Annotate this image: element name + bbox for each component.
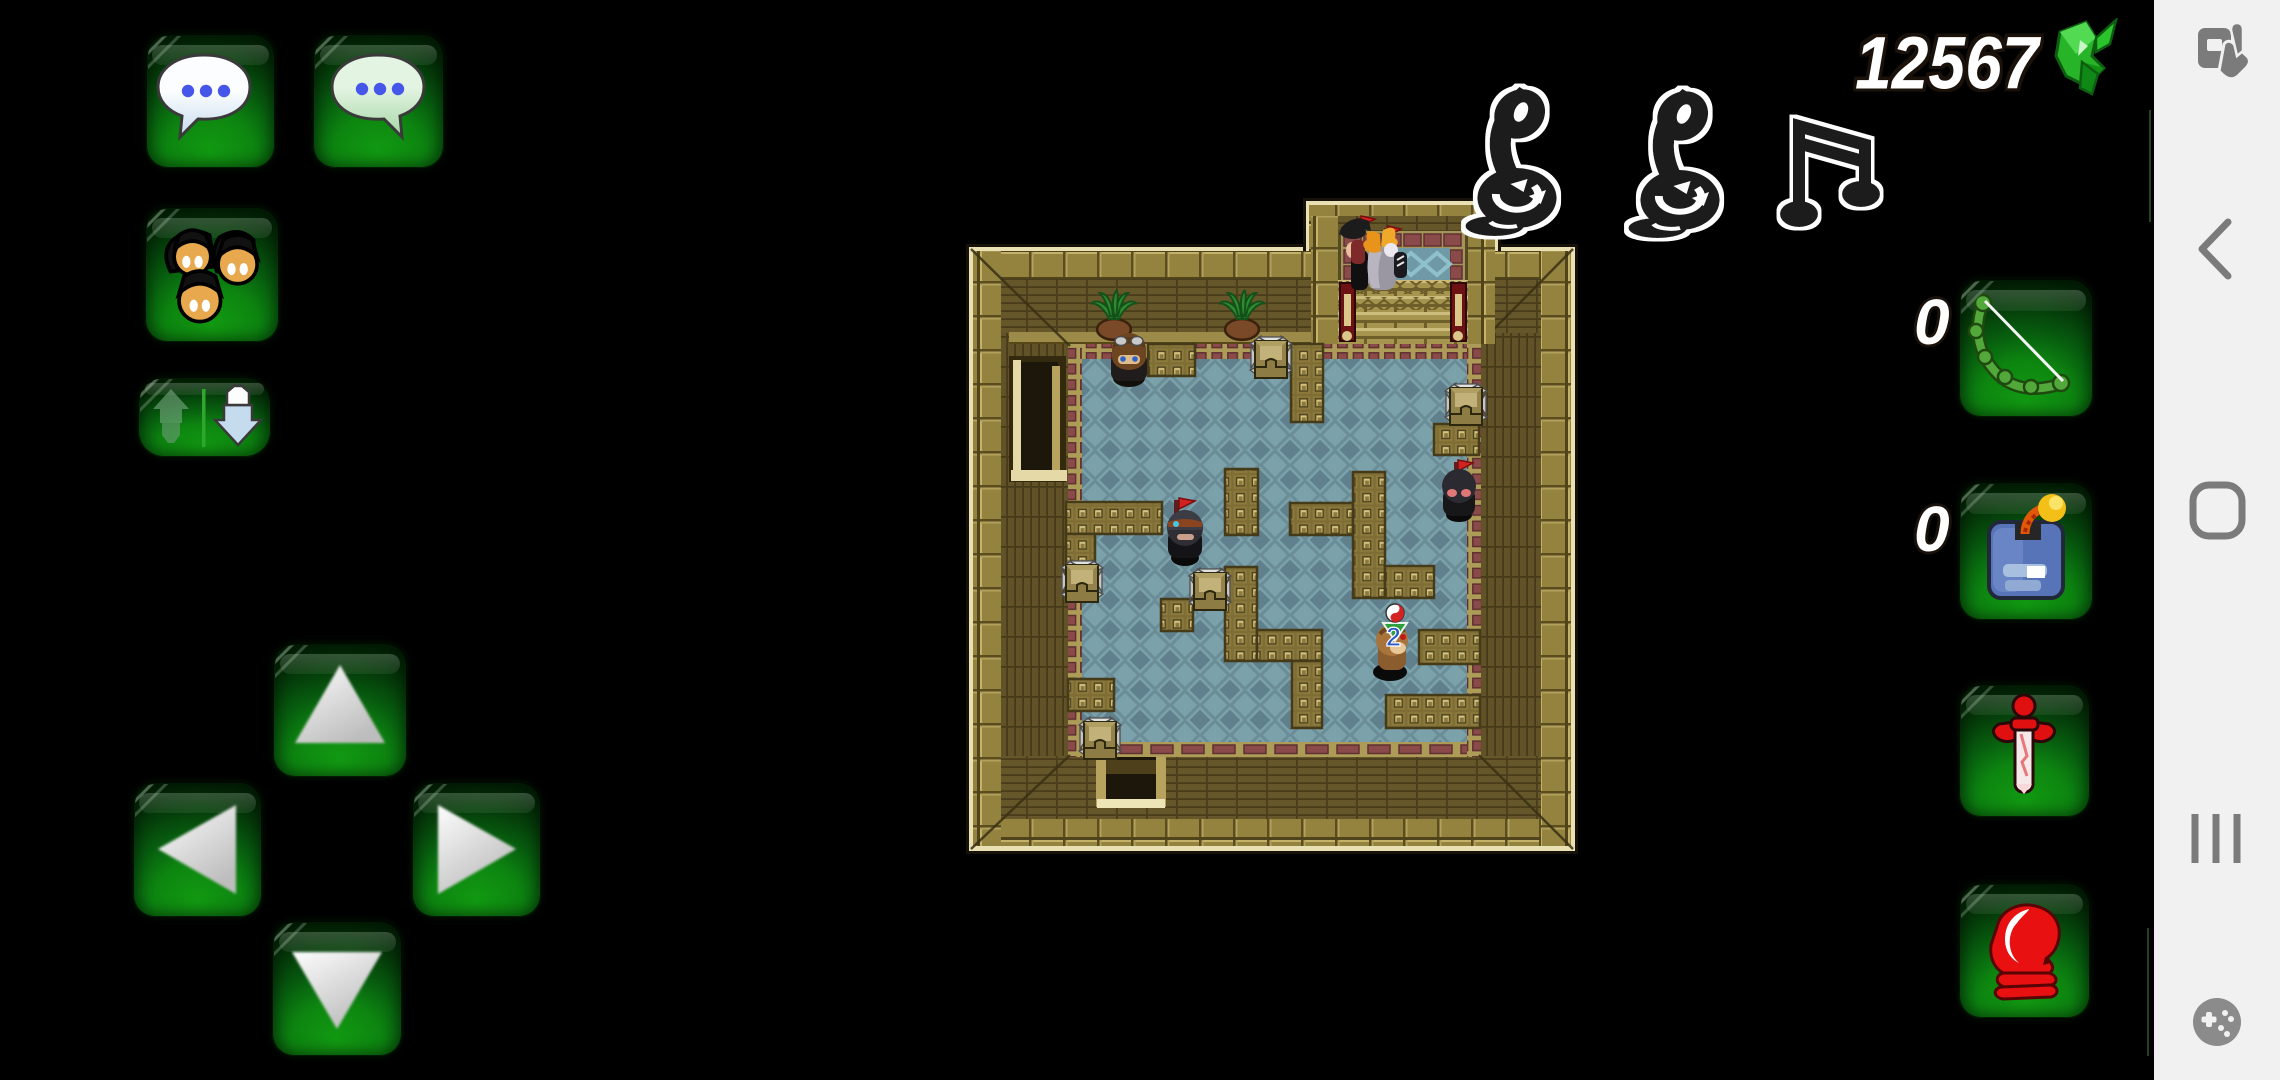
svg-text:2: 2 <box>1386 622 1401 652</box>
